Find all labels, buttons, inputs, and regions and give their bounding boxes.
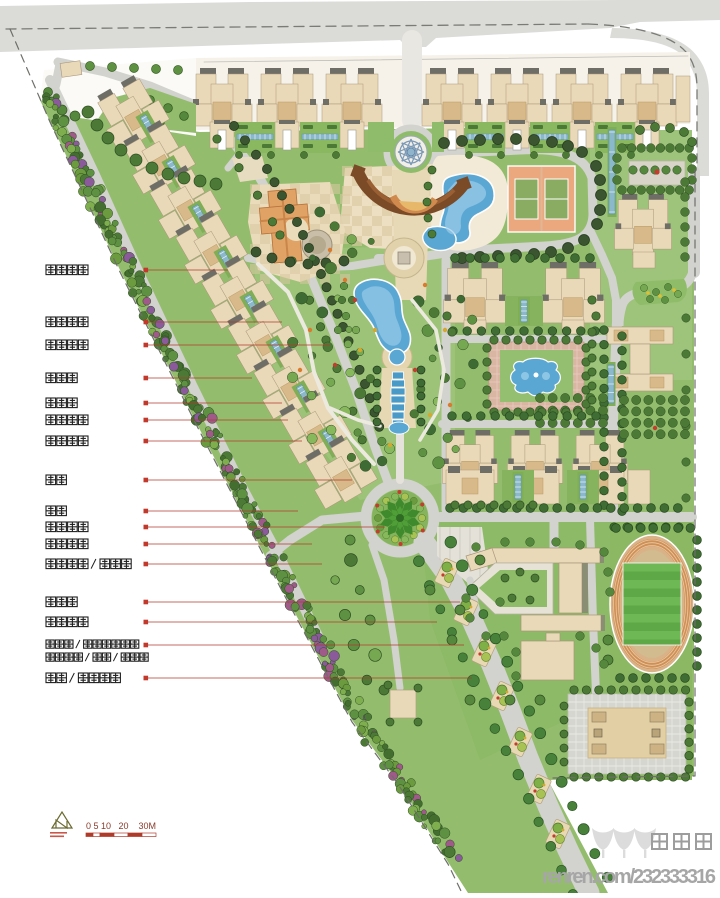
svg-text:0 5 10 20 30M: 0 5 10 20 30M (86, 821, 156, 831)
svg-text:renren.com/232333316: renren.com/232333316 (542, 866, 716, 888)
